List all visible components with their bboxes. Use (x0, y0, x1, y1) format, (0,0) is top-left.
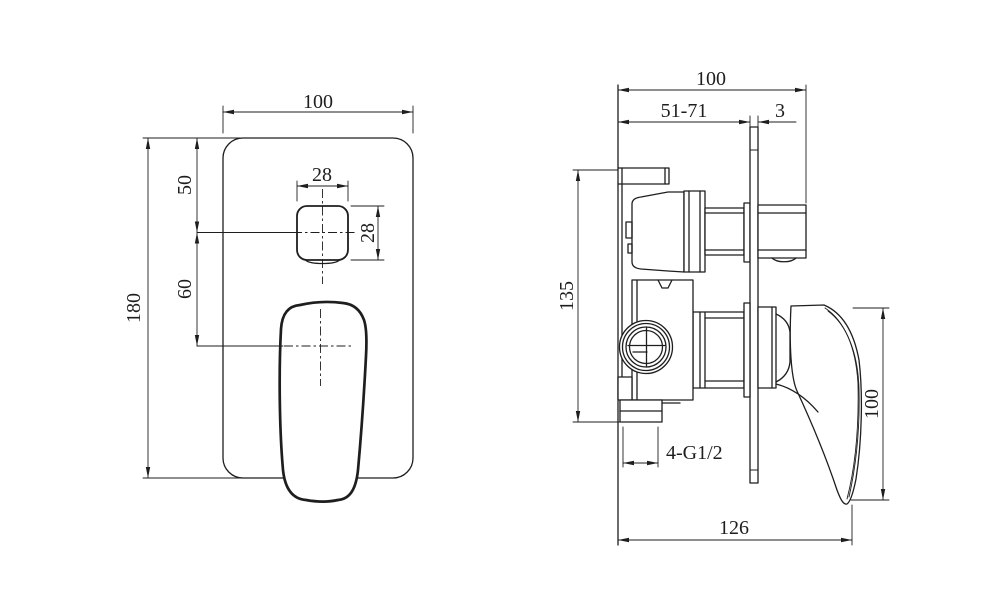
front-dim-plate-width-label: 100 (303, 91, 333, 113)
front-dim-button-width-label: 28 (312, 164, 332, 186)
side-wall-plate (750, 127, 758, 483)
front-dim-plate-width: 100 (223, 91, 413, 133)
front-dim-plate-height-label: 180 (123, 293, 145, 323)
technical-drawing: 100 180 50 60 28 (0, 0, 1000, 600)
side-handle (758, 305, 861, 504)
front-handle-outline (280, 302, 367, 502)
side-outlet-port (620, 321, 673, 374)
side-handle-lever (790, 305, 861, 504)
side-dim-depth-overall: 126 (618, 505, 852, 545)
side-top-block (618, 168, 669, 184)
front-dim-handle-offset-label: 60 (174, 279, 196, 299)
side-dim-depth-embed: 51-71 (618, 100, 758, 127)
front-view: 100 180 50 60 28 (123, 91, 413, 502)
side-dim-inlet-thread-label: 4-G1/2 (666, 442, 723, 464)
side-view: 100 51-71 3 135 100 (556, 68, 889, 545)
side-mixer-cartridge (693, 303, 750, 397)
side-dim-body-height-label: 135 (556, 281, 578, 311)
side-diverter-cartridge (626, 191, 750, 272)
side-dim-inlet-thread: 4-G1/2 (623, 427, 723, 467)
side-dim-depth-total: 100 (618, 68, 806, 203)
front-dim-button-height-label: 28 (357, 223, 379, 243)
drawing-canvas: 100 180 50 60 28 (0, 0, 1000, 600)
front-dim-button-offset: 50 (174, 138, 197, 233)
side-diverter-button (758, 205, 806, 262)
front-dim-button-offset-label: 50 (174, 175, 196, 195)
side-dim-depth-total-label: 100 (696, 68, 726, 90)
side-dim-depth-overall-label: 126 (719, 517, 749, 539)
side-dim-handle-height-label: 100 (861, 389, 883, 419)
side-dim-plate-thickness: 3 (758, 100, 796, 122)
side-dim-depth-embed-label: 51-71 (661, 100, 708, 122)
side-dim-plate-thickness-label: 3 (775, 100, 785, 122)
side-dim-body-height: 135 (556, 170, 620, 422)
